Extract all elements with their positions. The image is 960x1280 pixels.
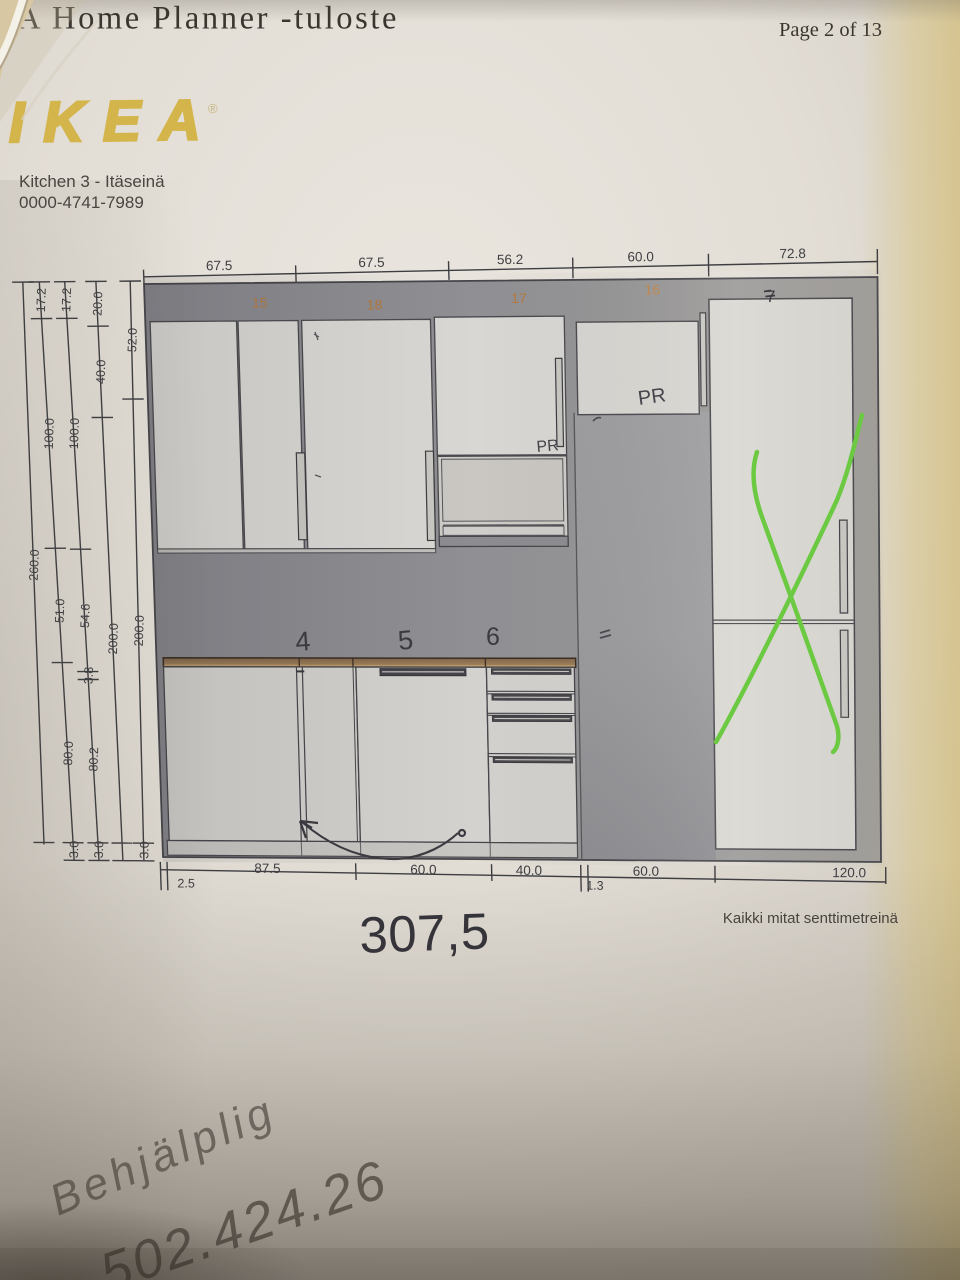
svg-text:56.2: 56.2 (497, 252, 523, 267)
svg-text:72.8: 72.8 (779, 246, 805, 261)
svg-text:Page 2 of 13: Page 2 of 13 (779, 19, 882, 41)
svg-text:67.5: 67.5 (358, 255, 384, 270)
svg-text:4: 4 (294, 626, 311, 657)
svg-text:PR: PR (536, 437, 560, 456)
svg-text:60.0: 60.0 (627, 249, 653, 264)
svg-text:5: 5 (396, 625, 414, 656)
svg-text:®: ® (208, 101, 218, 116)
svg-text:PR: PR (637, 384, 668, 410)
svg-text:6: 6 (486, 623, 500, 651)
svg-text:IKEA: IKEA (8, 88, 219, 155)
